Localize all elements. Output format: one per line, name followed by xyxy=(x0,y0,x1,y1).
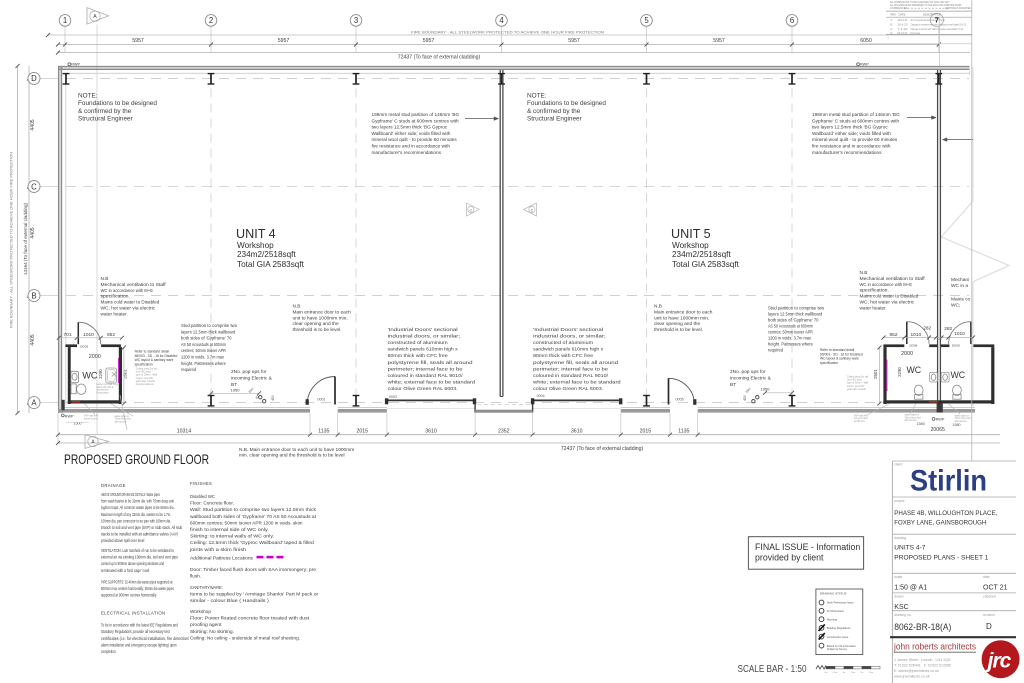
svg-text:supported at 900mm centres hor: supported at 900mm centres horizontally. xyxy=(101,593,157,598)
svg-text:0.5m: 0.5m xyxy=(833,672,838,674)
svg-text:perimeter; internal face to be: perimeter; internal face to be xyxy=(388,366,463,371)
svg-text:Statutory Regulations; provide: Statutory Regulations; provide all neces… xyxy=(101,629,170,634)
svg-text:at 500 ctrs: at 500 ctrs xyxy=(854,420,866,423)
svg-text:WC: WC xyxy=(951,370,966,380)
svg-text:+: + xyxy=(888,36,890,40)
svg-text:Subject to Survey: Subject to Survey xyxy=(827,647,848,651)
svg-text:constructed of aluminium: constructed of aluminium xyxy=(533,340,593,345)
svg-text:& confirmed by the: & confirmed by the xyxy=(78,108,132,115)
svg-text:completion.: completion. xyxy=(101,649,116,654)
svg-text:FOXBY LANE, GAINSBOROUGH: FOXBY LANE, GAINSBOROUGH xyxy=(894,520,986,527)
svg-text:RWP: RWP xyxy=(936,418,945,422)
svg-text:72437 (To face of external cla: 72437 (To face of external cladding) xyxy=(398,54,481,60)
svg-text:3: 3 xyxy=(354,16,358,25)
svg-text:fire resistance and in accorda: fire resistance and in accordance with xyxy=(372,144,451,149)
svg-text:BT: BT xyxy=(231,382,237,388)
svg-text:2015: 2015 xyxy=(357,428,369,434)
svg-text:C: C xyxy=(531,208,534,212)
svg-text:alarm installation and emergen: alarm installation and emergency escape … xyxy=(101,642,177,647)
svg-text:threshold is to be level.: threshold is to be level. xyxy=(654,327,703,333)
svg-text:wallboard both sides of 'Gypfr: wallboard both sides of 'Gypframe' 70 AS… xyxy=(190,514,317,519)
svg-text:Additional Pattress Locations: Additional Pattress Locations xyxy=(190,556,254,561)
svg-text:checked: checked xyxy=(983,595,996,599)
svg-text:WC: WC xyxy=(907,365,922,375)
svg-text:colour Olive Green RAL 6003.: colour Olive Green RAL 6003. xyxy=(533,386,603,391)
svg-text:layers 12.5mm thick wallboard: layers 12.5mm thick wallboard xyxy=(768,312,822,318)
svg-text:1135: 1135 xyxy=(678,428,689,434)
svg-text:1 James Street . Lincoln . LN1: 1 James Street . Lincoln . LN1 1QD xyxy=(894,658,951,662)
svg-text:Mains cold water to Disabled: Mains cold water to Disabled xyxy=(860,294,919,300)
svg-text:SVP with AAV: SVP with AAV xyxy=(84,415,99,418)
svg-text:2015: 2015 xyxy=(640,428,652,434)
svg-text:Planning: Planning xyxy=(827,617,838,621)
svg-text:water heater.: water heater. xyxy=(101,311,128,317)
svg-text:required: required xyxy=(181,367,196,373)
svg-text:drawing: drawing xyxy=(894,536,906,540)
svg-text:5957: 5957 xyxy=(713,38,725,44)
svg-text:1200 in voids. 3.7m max: 1200 in voids. 3.7m max xyxy=(181,355,224,361)
svg-text:1135: 1135 xyxy=(318,428,329,434)
svg-text:specification.: specification. xyxy=(101,294,130,300)
svg-text:drawing no.: drawing no. xyxy=(894,613,912,617)
svg-text:date: date xyxy=(983,575,990,579)
svg-text:600mm centres; 50mm Isover APR: 600mm centres; 50mm Isover APR 1200 in v… xyxy=(190,520,303,525)
svg-text:similar - colour Blue ( Handra: similar - colour Blue ( Handrails ) xyxy=(190,598,269,603)
svg-text:Skirting: to internal walls of: Skirting: to internal walls of WC only. xyxy=(190,534,274,539)
svg-text:specification.: specification. xyxy=(860,288,889,294)
svg-text:6: 6 xyxy=(790,16,794,25)
svg-text:flush.: flush. xyxy=(190,574,201,579)
svg-text:SANITARYWARE:: SANITARYWARE: xyxy=(190,585,223,590)
svg-text:72437 (To face of external cla: 72437 (To face of external cladding) xyxy=(561,446,644,452)
svg-text:BT: BT xyxy=(730,382,736,388)
svg-text:DG06: DG06 xyxy=(910,344,918,348)
svg-text:4405: 4405 xyxy=(30,119,36,130)
svg-text:ELECTRICAL INSTALLATION: ELECTRICAL INSTALLATION xyxy=(101,610,165,615)
svg-text:Stud partition to comprise two: Stud partition to comprise two xyxy=(181,323,237,329)
svg-text:unit to have 1000mm min.: unit to have 1000mm min. xyxy=(654,315,709,321)
svg-text:joints with a skim finish: joints with a skim finish xyxy=(189,547,247,552)
svg-text:234m2/2518sqft: 234m2/2518sqft xyxy=(237,250,296,259)
svg-text:branch to soil and vent pipe (: branch to soil and vent pipe (SVP) or st… xyxy=(101,525,183,530)
svg-text:0001: 0001 xyxy=(318,398,326,402)
svg-text:Changes to accord with client: Changes to accord with client instructio… xyxy=(911,27,964,31)
svg-text:2352: 2352 xyxy=(498,428,510,434)
svg-text:UNITS 4-7: UNITS 4-7 xyxy=(894,545,925,552)
svg-text:specification: specification xyxy=(820,361,838,365)
svg-text:0005: 0005 xyxy=(676,398,684,402)
svg-text:Mechanical ventilation to Staf: Mechanical ventilation to Staff xyxy=(101,282,167,288)
svg-text:8062-BR-18(A): 8062-BR-18(A) xyxy=(894,622,951,632)
svg-text:boxed in duct: boxed in duct xyxy=(854,417,868,420)
svg-text:Total GIA 2583sqft: Total GIA 2583sqft xyxy=(672,260,740,269)
svg-text:FINISHES: FINISHES xyxy=(190,481,212,486)
svg-text:external air via existing 100m: external air via existing 100mm dia. soi… xyxy=(101,555,179,560)
svg-text:1950: 1950 xyxy=(231,387,241,392)
svg-text:layers 12.5mm thick wallboard: layers 12.5mm thick wallboard xyxy=(181,329,235,335)
svg-text:701: 701 xyxy=(63,332,71,338)
svg-text:incoming Electric &: incoming Electric & xyxy=(730,376,772,382)
svg-text:1.5m: 1.5m xyxy=(851,672,856,674)
svg-text:waste pipes in: waste pipes in xyxy=(955,414,970,417)
svg-text:from wash basins to be 32mm di: from wash basins to be 32mm dia. with 75… xyxy=(101,499,174,504)
svg-text:Structural Engineer: Structural Engineer xyxy=(78,116,134,123)
svg-text:100mm dia. pan connector to wc: 100mm dia. pan connector to wc pan with … xyxy=(101,518,171,523)
svg-text:Floor: Concrete floor.: Floor: Concrete floor. xyxy=(190,501,234,506)
svg-text:Items to be supplied by ' Armi: Items to be supplied by ' Armitage Shank… xyxy=(190,592,319,597)
svg-text:WC in accordance with M+E: WC in accordance with M+E xyxy=(860,282,913,288)
svg-text:www.jrarchitects.co.uk: www.jrarchitects.co.uk xyxy=(894,675,930,679)
svg-text:jrc: jrc xyxy=(985,650,1012,673)
svg-text:water heater.: water heater. xyxy=(860,305,887,311)
svg-text:Laufen pro wall hung: Laufen pro wall hung xyxy=(97,383,119,386)
svg-text:D: D xyxy=(986,622,992,631)
svg-text:RWP: RWP xyxy=(71,63,80,67)
svg-text:198mm metal stud partition of: 198mm metal stud partition of 146mm 'BG xyxy=(372,112,460,117)
svg-text:3610: 3610 xyxy=(571,428,583,434)
svg-text:carried up to 900mm above open: carried up to 900mm above opening window… xyxy=(101,561,164,566)
svg-text:WC; hot water via electric: WC; hot water via electric xyxy=(860,300,915,306)
svg-text:provided above spill over leve: provided above spill over level xyxy=(101,538,144,543)
svg-text:75mm floor duct: 75mm floor duct xyxy=(115,418,132,421)
svg-text:required: required xyxy=(768,348,783,354)
svg-text:N.B: N.B xyxy=(101,276,109,282)
svg-text:manufacturer's recommendations: manufacturer's recommendations xyxy=(812,150,882,155)
svg-text:198mm metal stud partition of: 198mm metal stud partition of 146mm 'BG xyxy=(812,112,900,117)
svg-text:coloured in standard RAL 9010/: coloured in standard RAL 9010/ xyxy=(533,373,609,378)
svg-text:WC;: WC; xyxy=(951,303,960,309)
svg-text:RWP: RWP xyxy=(65,414,74,418)
svg-text:boxed in duct: boxed in duct xyxy=(84,417,98,420)
svg-text:4405: 4405 xyxy=(30,334,36,345)
svg-text:FIRE BOUNDARY - ALL STEELWORK: FIRE BOUNDARY - ALL STEELWORK PROTECTED … xyxy=(9,152,14,328)
svg-text:stacks to be installed with ai: stacks to be installed with air admittan… xyxy=(101,532,178,537)
svg-text:Ceiling: 12.5mm thick 'Gyproc: Ceiling: 12.5mm thick 'Gyproc Wallboard'… xyxy=(190,540,314,545)
svg-text:4405: 4405 xyxy=(30,227,36,238)
svg-text:mineral wool quilt - to provid: mineral wool quilt - to provide 60 minut… xyxy=(812,137,898,142)
svg-text:WC's moved & internal layout a: WC's moved & internal layout amendments xyxy=(911,18,946,22)
svg-text:2: 2 xyxy=(209,16,213,25)
svg-text:grab rails; smooth: grab rails; smooth xyxy=(847,388,867,391)
svg-text:VENTILATION: Last manhole of r: VENTILATION: Last manhole of run to be v… xyxy=(101,548,174,553)
svg-text:UNIT 5: UNIT 5 xyxy=(671,227,711,241)
svg-text:2No. pop ups for: 2No. pop ups for xyxy=(730,369,766,375)
svg-text:C: C xyxy=(31,182,37,191)
svg-text:1500: 1500 xyxy=(73,421,81,425)
svg-text:N.B: N.B xyxy=(860,270,868,276)
svg-text:WC; hot water via electric: WC; hot water via electric xyxy=(101,306,156,312)
svg-text:Structural Engineer: Structural Engineer xyxy=(527,116,583,123)
svg-text:perimeter; internal face to be: perimeter; internal face to be xyxy=(533,366,608,371)
svg-text:5: 5 xyxy=(644,16,649,25)
svg-text:both sides of 'Gypframe' 70: both sides of 'Gypframe' 70 xyxy=(181,336,232,342)
svg-text:DRAINAGE: DRAINAGE xyxy=(101,483,126,488)
svg-text:WC in a: WC in a xyxy=(951,283,968,289)
svg-text:Ceiling: No ceiling - undersid: Ceiling: No ceiling - underside of metal… xyxy=(190,635,300,640)
svg-text:WC: WC xyxy=(82,371,98,381)
svg-text:234m2/2518sqft: 234m2/2518sqft xyxy=(672,250,731,259)
svg-text:incoming Electric &: incoming Electric & xyxy=(231,376,273,382)
svg-text:Changes to annotate with clien: Changes to annotate with client instruct… xyxy=(911,23,967,27)
svg-text:Door: Timber faced flush doors: Door: Timber faced flush doors with SAA … xyxy=(190,567,316,572)
svg-text:proofing agent: proofing agent xyxy=(190,622,222,627)
svg-text:7.1.22: 7.1.22 xyxy=(898,27,909,31)
svg-text:Construction Issue: Construction Issue xyxy=(827,635,849,639)
svg-text:T: 01522 535441 . F: 01522 512: T: 01522 535441 . F: 01522 512585 xyxy=(894,664,951,668)
svg-text:with access: with access xyxy=(115,420,128,423)
svg-text:waste pipes in: waste pipes in xyxy=(115,415,130,418)
svg-text:B: B xyxy=(891,23,893,27)
svg-text:Foundations to be designed: Foundations to be designed xyxy=(527,100,606,107)
svg-text:500mm max centres horizontally: 500mm max centres horizontally; 50mm dia… xyxy=(101,586,174,591)
svg-text:6050: 6050 xyxy=(860,38,872,44)
svg-text:A: A xyxy=(93,14,97,20)
svg-text:75mm floor duct: 75mm floor duct xyxy=(905,416,922,419)
svg-text:min. clear opening and the thr: min. clear opening and the threshold is … xyxy=(239,453,345,459)
svg-text:852: 852 xyxy=(889,332,897,338)
svg-text:plywood pattress: plywood pattress xyxy=(136,383,155,386)
svg-text:C: C xyxy=(469,208,472,212)
svg-text:2501: 2501 xyxy=(122,369,127,379)
svg-text:Mechanical ventilation to Staf: Mechanical ventilation to Staff xyxy=(860,276,926,282)
svg-text:2000: 2000 xyxy=(89,354,101,360)
svg-text:To be in accordance with the l: To be in accordance with the latest IEE … xyxy=(101,623,178,628)
svg-text:height. Pattresses where: height. Pattresses where xyxy=(181,361,226,367)
svg-text:OCT 21: OCT 21 xyxy=(983,585,1007,592)
svg-text:Main entrance door to each: Main entrance door to each xyxy=(293,309,352,315)
svg-text:two layers 12.5mm thick 'BG Gy: two layers 12.5mm thick 'BG Gyproc xyxy=(812,125,888,130)
svg-text:syphon traps. All common waste: syphon traps. All common waste pipes to … xyxy=(101,505,175,510)
svg-text:2290: 2290 xyxy=(98,369,103,379)
svg-text:Draft 'Preliminary Issue: Draft 'Preliminary Issue xyxy=(827,601,854,605)
svg-text:Workshop: Workshop xyxy=(672,241,709,250)
svg-text:0004: 0004 xyxy=(537,394,545,398)
svg-text:specification: specification xyxy=(135,362,153,366)
svg-text:1010: 1010 xyxy=(910,332,921,338)
svg-text:4: 4 xyxy=(499,16,504,25)
svg-text:282: 282 xyxy=(944,326,952,332)
svg-text:5957: 5957 xyxy=(278,38,290,44)
svg-text:0003: 0003 xyxy=(389,395,397,399)
svg-text:scale: scale xyxy=(894,575,902,579)
svg-text:REV: REV xyxy=(891,13,897,17)
svg-text:NOTE:: NOTE: xyxy=(527,93,547,100)
svg-text:0m: 0m xyxy=(825,672,828,674)
svg-text:accessories: accessories xyxy=(97,389,110,392)
svg-text:height. Pattresses where: height. Pattresses where xyxy=(768,342,813,348)
svg-text:Building Regulations: Building Regulations xyxy=(827,626,851,630)
svg-text:2.5m: 2.5m xyxy=(869,672,874,674)
svg-text:450: 450 xyxy=(271,395,275,401)
svg-text:A: A xyxy=(31,398,37,407)
svg-text:fire resistance and in accorda: fire resistance and in accordance with xyxy=(812,144,891,149)
svg-text:PROPOSED GROUND FLOOR: PROPOSED GROUND FLOOR xyxy=(64,452,209,467)
svg-text:fixing plates: fixing plates xyxy=(97,391,110,394)
svg-text:A: A xyxy=(91,440,95,446)
svg-text:Total GIA 2583sqft: Total GIA 2583sqft xyxy=(237,260,305,269)
svg-text:Floor: Power floated concrete: Floor: Power floated concrete floor trea… xyxy=(190,616,310,621)
svg-text:Stud partition to comprise two: Stud partition to comprise two xyxy=(768,306,824,312)
svg-text:SVP with AAV: SVP with AAV xyxy=(854,414,869,417)
svg-text:N.B. Main entrance door to eac: N.B. Main entrance door to each unit to … xyxy=(239,447,354,453)
svg-text:2290: 2290 xyxy=(897,367,902,377)
svg-text:COPYRIGHT RESERVED: COPYRIGHT RESERVED xyxy=(945,6,971,10)
svg-text:852: 852 xyxy=(107,332,115,338)
svg-text:2m: 2m xyxy=(861,672,864,674)
svg-text:1: 1 xyxy=(63,16,67,25)
svg-text:1010: 1010 xyxy=(83,332,94,338)
svg-text:AS 50 Acoustuds at 600mm: AS 50 Acoustuds at 600mm xyxy=(768,324,813,330)
svg-text:Workshop: Workshop xyxy=(190,609,211,614)
svg-text:Mechani: Mechani xyxy=(951,277,969,283)
svg-text:80mm thick with CFC free: 80mm thick with CFC free xyxy=(533,353,593,358)
svg-text:1:50 @ A1: 1:50 @ A1 xyxy=(894,585,927,592)
svg-text:ABOVE GROUND DRAINAGE DETAILS:: ABOVE GROUND DRAINAGE DETAILS: Waste pip… xyxy=(101,492,160,497)
svg-text:white; external face to be sta: white; external face to be standard xyxy=(533,380,621,385)
svg-text:KSC: KSC xyxy=(894,604,908,611)
svg-text:NOTE:: NOTE: xyxy=(78,93,98,100)
svg-text:5957: 5957 xyxy=(132,38,144,44)
svg-text:manufacturer's recommendations: manufacturer's recommendations xyxy=(372,150,442,155)
svg-text:UNIT 4: UNIT 4 xyxy=(236,227,276,241)
svg-text:polystyrene fill, seals all ar: polystyrene fill, seals all around xyxy=(388,360,474,365)
svg-text:80mm thick with CFC free: 80mm thick with CFC free xyxy=(388,353,448,358)
svg-text:5957: 5957 xyxy=(568,38,580,44)
svg-text:Gypframe' C studs at 600mm cen: Gypframe' C studs at 600mm centres with xyxy=(812,118,900,123)
svg-text:DRAWING STATUS: DRAWING STATUS xyxy=(820,591,847,595)
svg-text:industrial doors, or similar;: industrial doors, or similar; xyxy=(388,333,461,338)
svg-text:1580: 1580 xyxy=(952,423,960,427)
svg-text:282: 282 xyxy=(923,326,931,332)
svg-text:1200 in voids. 3.7m max: 1200 in voids. 3.7m max xyxy=(768,336,811,342)
svg-text:SCALE BAR - 1:50: SCALE BAR - 1:50 xyxy=(738,664,807,675)
svg-text:14164 (To face of external cla: 14164 (To face of external cladding) xyxy=(23,203,28,275)
svg-text:sandwich panels 610mm high x: sandwich panels 610mm high x xyxy=(388,347,459,352)
svg-text:waste pipes in: waste pipes in xyxy=(905,414,920,417)
svg-text:DESCRIPTION: DESCRIPTION xyxy=(923,13,941,17)
svg-text:constructed of aluminium: constructed of aluminium xyxy=(388,340,448,345)
svg-text:finish to internal side of WC: finish to internal side of WC only. xyxy=(190,527,269,532)
svg-text:1m: 1m xyxy=(843,672,846,674)
svg-text:terminated with a 'bird cage': terminated with a 'bird cage' cowl. xyxy=(101,568,150,573)
svg-text:mineral wool quilt - to provid: mineral wool quilt - to provide 60 minut… xyxy=(372,137,458,142)
svg-text:Wallboard' either side; voids: Wallboard' either side; voids filled wit… xyxy=(812,131,891,136)
svg-text:2No. pop ups for: 2No. pop ups for xyxy=(231,369,267,375)
svg-text:For Discussion: For Discussion xyxy=(827,609,845,613)
svg-text:AS 50 Acoustuds at 600mm: AS 50 Acoustuds at 600mm xyxy=(181,342,226,348)
svg-text:WC in accordance with M+E: WC in accordance with M+E xyxy=(101,288,154,294)
svg-text:& confirmed by the: & confirmed by the xyxy=(527,108,581,115)
svg-text:RWP: RWP xyxy=(860,63,869,67)
svg-text:2501: 2501 xyxy=(873,369,878,379)
svg-text:FIRE BOUNDARY - ALL STEELWORK: FIRE BOUNDARY - ALL STEELWORK PROTECTED … xyxy=(411,29,604,34)
svg-text:DATE: DATE xyxy=(899,13,906,17)
svg-text:B: B xyxy=(31,291,36,300)
svg-text:Maximum length of any 32mm dia: Maximum length of any 32mm dia. wastes t… xyxy=(101,512,171,517)
svg-text:C: C xyxy=(891,27,893,31)
svg-text:E: admin@jrarchitects.co.uk: E: admin@jrarchitects.co.uk xyxy=(894,669,939,673)
svg-text:PROPOSED PLANS - SHEET 1: PROPOSED PLANS - SHEET 1 xyxy=(894,555,988,562)
svg-text:PIPE SUPPORTS: 32-40mm dia was: PIPE SUPPORTS: 32-40mm dia waste pipes s… xyxy=(101,580,173,585)
svg-text:Wall: Stud partition to compri: Wall: Stud partition to comprise two lay… xyxy=(190,507,317,512)
svg-text:3610: 3610 xyxy=(425,428,437,434)
svg-text:DG09: DG09 xyxy=(952,344,960,348)
svg-text:clear opening and the: clear opening and the xyxy=(293,321,339,327)
svg-text:colour Olive Green RAL 6003.: colour Olive Green RAL 6003. xyxy=(388,386,458,391)
svg-text:PHASE 4B, WILLOUGHTON PLACE,: PHASE 4B, WILLOUGHTON PLACE, xyxy=(894,510,997,517)
svg-text:unit to have 1000mm min.: unit to have 1000mm min. xyxy=(293,315,348,321)
svg-text:industrial doors, or similar;: industrial doors, or similar; xyxy=(533,333,606,338)
svg-text:'Industrial Doors' sectional: 'Industrial Doors' sectional xyxy=(388,327,458,332)
svg-text:450: 450 xyxy=(743,395,747,401)
svg-text:1950: 1950 xyxy=(761,386,771,391)
svg-text:5957: 5957 xyxy=(423,38,435,44)
svg-text:certificates (i.e. for electri: certificates (i.e. for electrical instal… xyxy=(101,636,190,641)
svg-text:Skirting: No skirting.: Skirting: No skirting. xyxy=(190,629,234,634)
svg-text:project: project xyxy=(894,499,904,503)
svg-text:revision: revision xyxy=(983,613,995,617)
svg-text:drawn: drawn xyxy=(894,595,903,599)
svg-text:polystyrene fill, seals all ar: polystyrene fill, seals all around xyxy=(533,360,619,365)
svg-text:2000: 2000 xyxy=(901,351,913,357)
svg-text:Main entrance door to each: Main entrance door to each xyxy=(654,309,713,315)
svg-text:sandwich panels 610mm high x: sandwich panels 610mm high x xyxy=(533,347,604,352)
svg-text:N.B: N.B xyxy=(293,304,301,310)
svg-text:basin with WC &: basin with WC & xyxy=(97,386,114,389)
svg-text:Workshop: Workshop xyxy=(237,241,274,250)
svg-text:clear opening and the: clear opening and the xyxy=(654,321,700,327)
svg-text:19.11.21: 19.11.21 xyxy=(898,18,908,22)
svg-text:threshold is to be level.: threshold is to be level. xyxy=(293,327,342,333)
svg-text:Disabled WC: Disabled WC xyxy=(190,494,216,499)
svg-text:centres; 50mm Isover APR: centres; 50mm Isover APR xyxy=(181,348,226,354)
svg-text:10314: 10314 xyxy=(177,428,192,434)
svg-text:20065: 20065 xyxy=(930,427,945,433)
svg-text:FINAL ISSUE - Information: FINAL ISSUE - Information xyxy=(755,542,860,552)
svg-text:A: A xyxy=(891,18,893,22)
svg-text:75mm floor duct: 75mm floor duct xyxy=(955,417,972,420)
svg-text:Mains co: Mains co xyxy=(951,297,971,303)
svg-text:DG03: DG03 xyxy=(80,344,88,348)
svg-text:'Industrial Doors' sectional: 'Industrial Doors' sectional xyxy=(533,327,603,332)
svg-text:centres; 50mm Isover APR: centres; 50mm Isover APR xyxy=(768,330,813,336)
svg-text:26.4.23: 26.4.23 xyxy=(898,23,909,27)
svg-text:Gypframe' C studs at 600mm cen: Gypframe' C studs at 600mm centres with xyxy=(372,118,460,123)
svg-text:client: client xyxy=(894,463,902,467)
svg-text:Stirlin: Stirlin xyxy=(910,465,987,498)
svg-text:Foundations to be designed: Foundations to be designed xyxy=(78,100,157,107)
svg-text:with access: with access xyxy=(905,419,918,422)
svg-text:provided by client: provided by client xyxy=(755,553,824,563)
svg-text:1580: 1580 xyxy=(917,422,925,426)
svg-text:john roberts architects: john roberts architects xyxy=(893,642,977,652)
svg-text:both sides of 'Gypframe' 70: both sides of 'Gypframe' 70 xyxy=(768,318,819,324)
svg-text:coloured in standard RAL 9010/: coloured in standard RAL 9010/ xyxy=(388,373,464,378)
svg-text:N.B: N.B xyxy=(654,304,662,310)
svg-text:white; external face to be sta: white; external face to be standard xyxy=(388,380,476,385)
svg-text:two layers 12.5mm thick 'BG Gy: two layers 12.5mm thick 'BG Gyproc xyxy=(372,125,448,130)
svg-text:1010: 1010 xyxy=(954,331,965,337)
svg-text:Mains cold water to Disabled: Mains cold water to Disabled xyxy=(101,300,160,306)
svg-text:D: D xyxy=(31,74,37,83)
svg-text:Wallboard' either side; voids: Wallboard' either side; voids filled wit… xyxy=(372,131,451,136)
